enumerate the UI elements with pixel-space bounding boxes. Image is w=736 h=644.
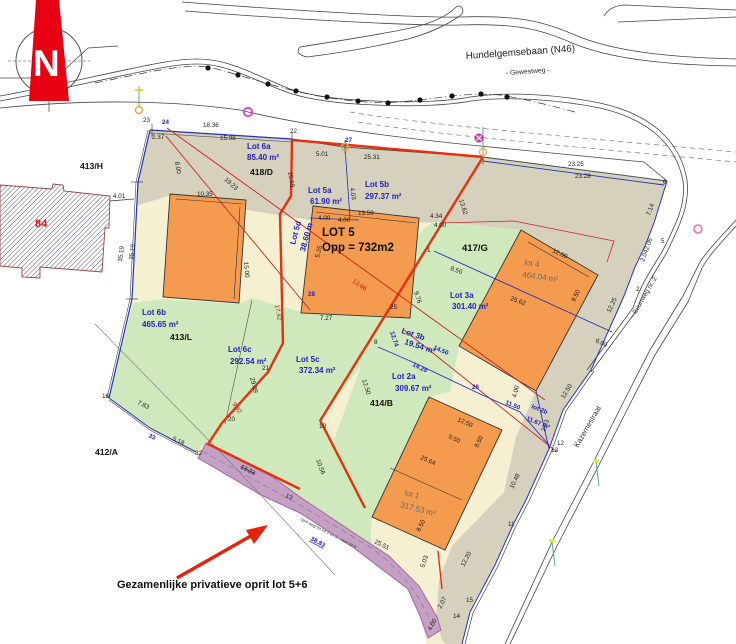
svg-text:20: 20 <box>228 416 236 423</box>
svg-text:85.40 m²: 85.40 m² <box>247 153 279 162</box>
svg-text:Lot 5a: Lot 5a <box>308 186 332 195</box>
svg-text:413/H: 413/H <box>80 161 103 171</box>
svg-text:Lot 6c: Lot 6c <box>228 345 252 354</box>
svg-text:26: 26 <box>472 384 480 391</box>
svg-text:N: N <box>33 43 60 84</box>
svg-text:16: 16 <box>102 393 110 400</box>
svg-text:21: 21 <box>262 365 270 372</box>
svg-text:27: 27 <box>345 137 353 144</box>
svg-text:Gezamenlijke privatieve oprit: Gezamenlijke privatieve oprit lot 5+6 <box>117 579 307 591</box>
svg-text:15.98: 15.98 <box>220 135 236 142</box>
svg-text:18.36: 18.36 <box>203 122 219 129</box>
svg-text:372.34 m²: 372.34 m² <box>299 366 336 375</box>
svg-text:414/B: 414/B <box>370 398 393 408</box>
svg-text:15: 15 <box>466 597 474 604</box>
svg-text:12: 12 <box>557 440 565 447</box>
svg-text:412/A: 412/A <box>95 447 118 457</box>
svg-text:292.54 m²: 292.54 m² <box>230 357 267 366</box>
svg-text:4.01: 4.01 <box>113 193 126 200</box>
svg-text:417/G: 417/G <box>462 243 488 254</box>
svg-text:Lot 6a: Lot 6a <box>247 142 271 151</box>
svg-text:8: 8 <box>374 339 378 346</box>
svg-text:465.65 m²: 465.65 m² <box>142 320 179 329</box>
svg-text:2: 2 <box>636 286 640 293</box>
svg-text:5.01: 5.01 <box>316 151 329 158</box>
svg-text:23.28: 23.28 <box>575 173 591 180</box>
svg-text:Opp = 732m2: Opp = 732m2 <box>322 242 394 254</box>
svg-text:297.37 m²: 297.37 m² <box>365 192 402 201</box>
svg-text:4.00: 4.00 <box>318 215 331 222</box>
svg-text:4.00: 4.00 <box>338 217 351 224</box>
svg-text:Lot 2a: Lot 2a <box>392 372 416 381</box>
svg-text:7.27: 7.27 <box>320 315 333 322</box>
svg-text:5: 5 <box>661 238 665 245</box>
svg-text:1: 1 <box>427 247 431 254</box>
svg-text:23: 23 <box>143 117 151 124</box>
svg-text:84: 84 <box>35 218 48 230</box>
svg-text:418/D: 418/D <box>250 167 273 177</box>
svg-text:Lot 6b: Lot 6b <box>142 308 166 317</box>
svg-text:4.34: 4.34 <box>430 213 443 220</box>
svg-text:13.59: 13.59 <box>358 210 374 217</box>
svg-text:Lot 3a: Lot 3a <box>450 291 474 300</box>
svg-text:10.35: 10.35 <box>197 191 213 198</box>
svg-text:28: 28 <box>308 291 316 298</box>
svg-text:Lot 5b: Lot 5b <box>365 180 389 189</box>
svg-text:25: 25 <box>390 304 398 311</box>
svg-text:23.25: 23.25 <box>568 161 584 168</box>
svg-text:10: 10 <box>319 423 327 430</box>
svg-text:24: 24 <box>162 119 170 126</box>
svg-text:413/L: 413/L <box>170 332 192 342</box>
svg-text:LOT 5: LOT 5 <box>322 227 355 239</box>
svg-text:301.40 m²: 301.40 m² <box>452 302 489 311</box>
svg-text:25.31: 25.31 <box>364 154 380 161</box>
svg-text:11: 11 <box>508 521 515 528</box>
svg-text:Lot 5c: Lot 5c <box>296 355 320 364</box>
svg-text:309.67 m²: 309.67 m² <box>395 384 432 393</box>
svg-text:2.37: 2.37 <box>152 134 165 141</box>
svg-text:22: 22 <box>290 128 298 135</box>
svg-text:14: 14 <box>453 613 461 620</box>
svg-text:15.00: 15.00 <box>242 262 250 279</box>
svg-text:6: 6 <box>663 179 667 186</box>
svg-text:13: 13 <box>551 447 559 454</box>
svg-text:32: 32 <box>195 450 203 457</box>
svg-text:61.90 m²: 61.90 m² <box>310 197 342 206</box>
svg-text:4.00: 4.00 <box>434 222 447 229</box>
